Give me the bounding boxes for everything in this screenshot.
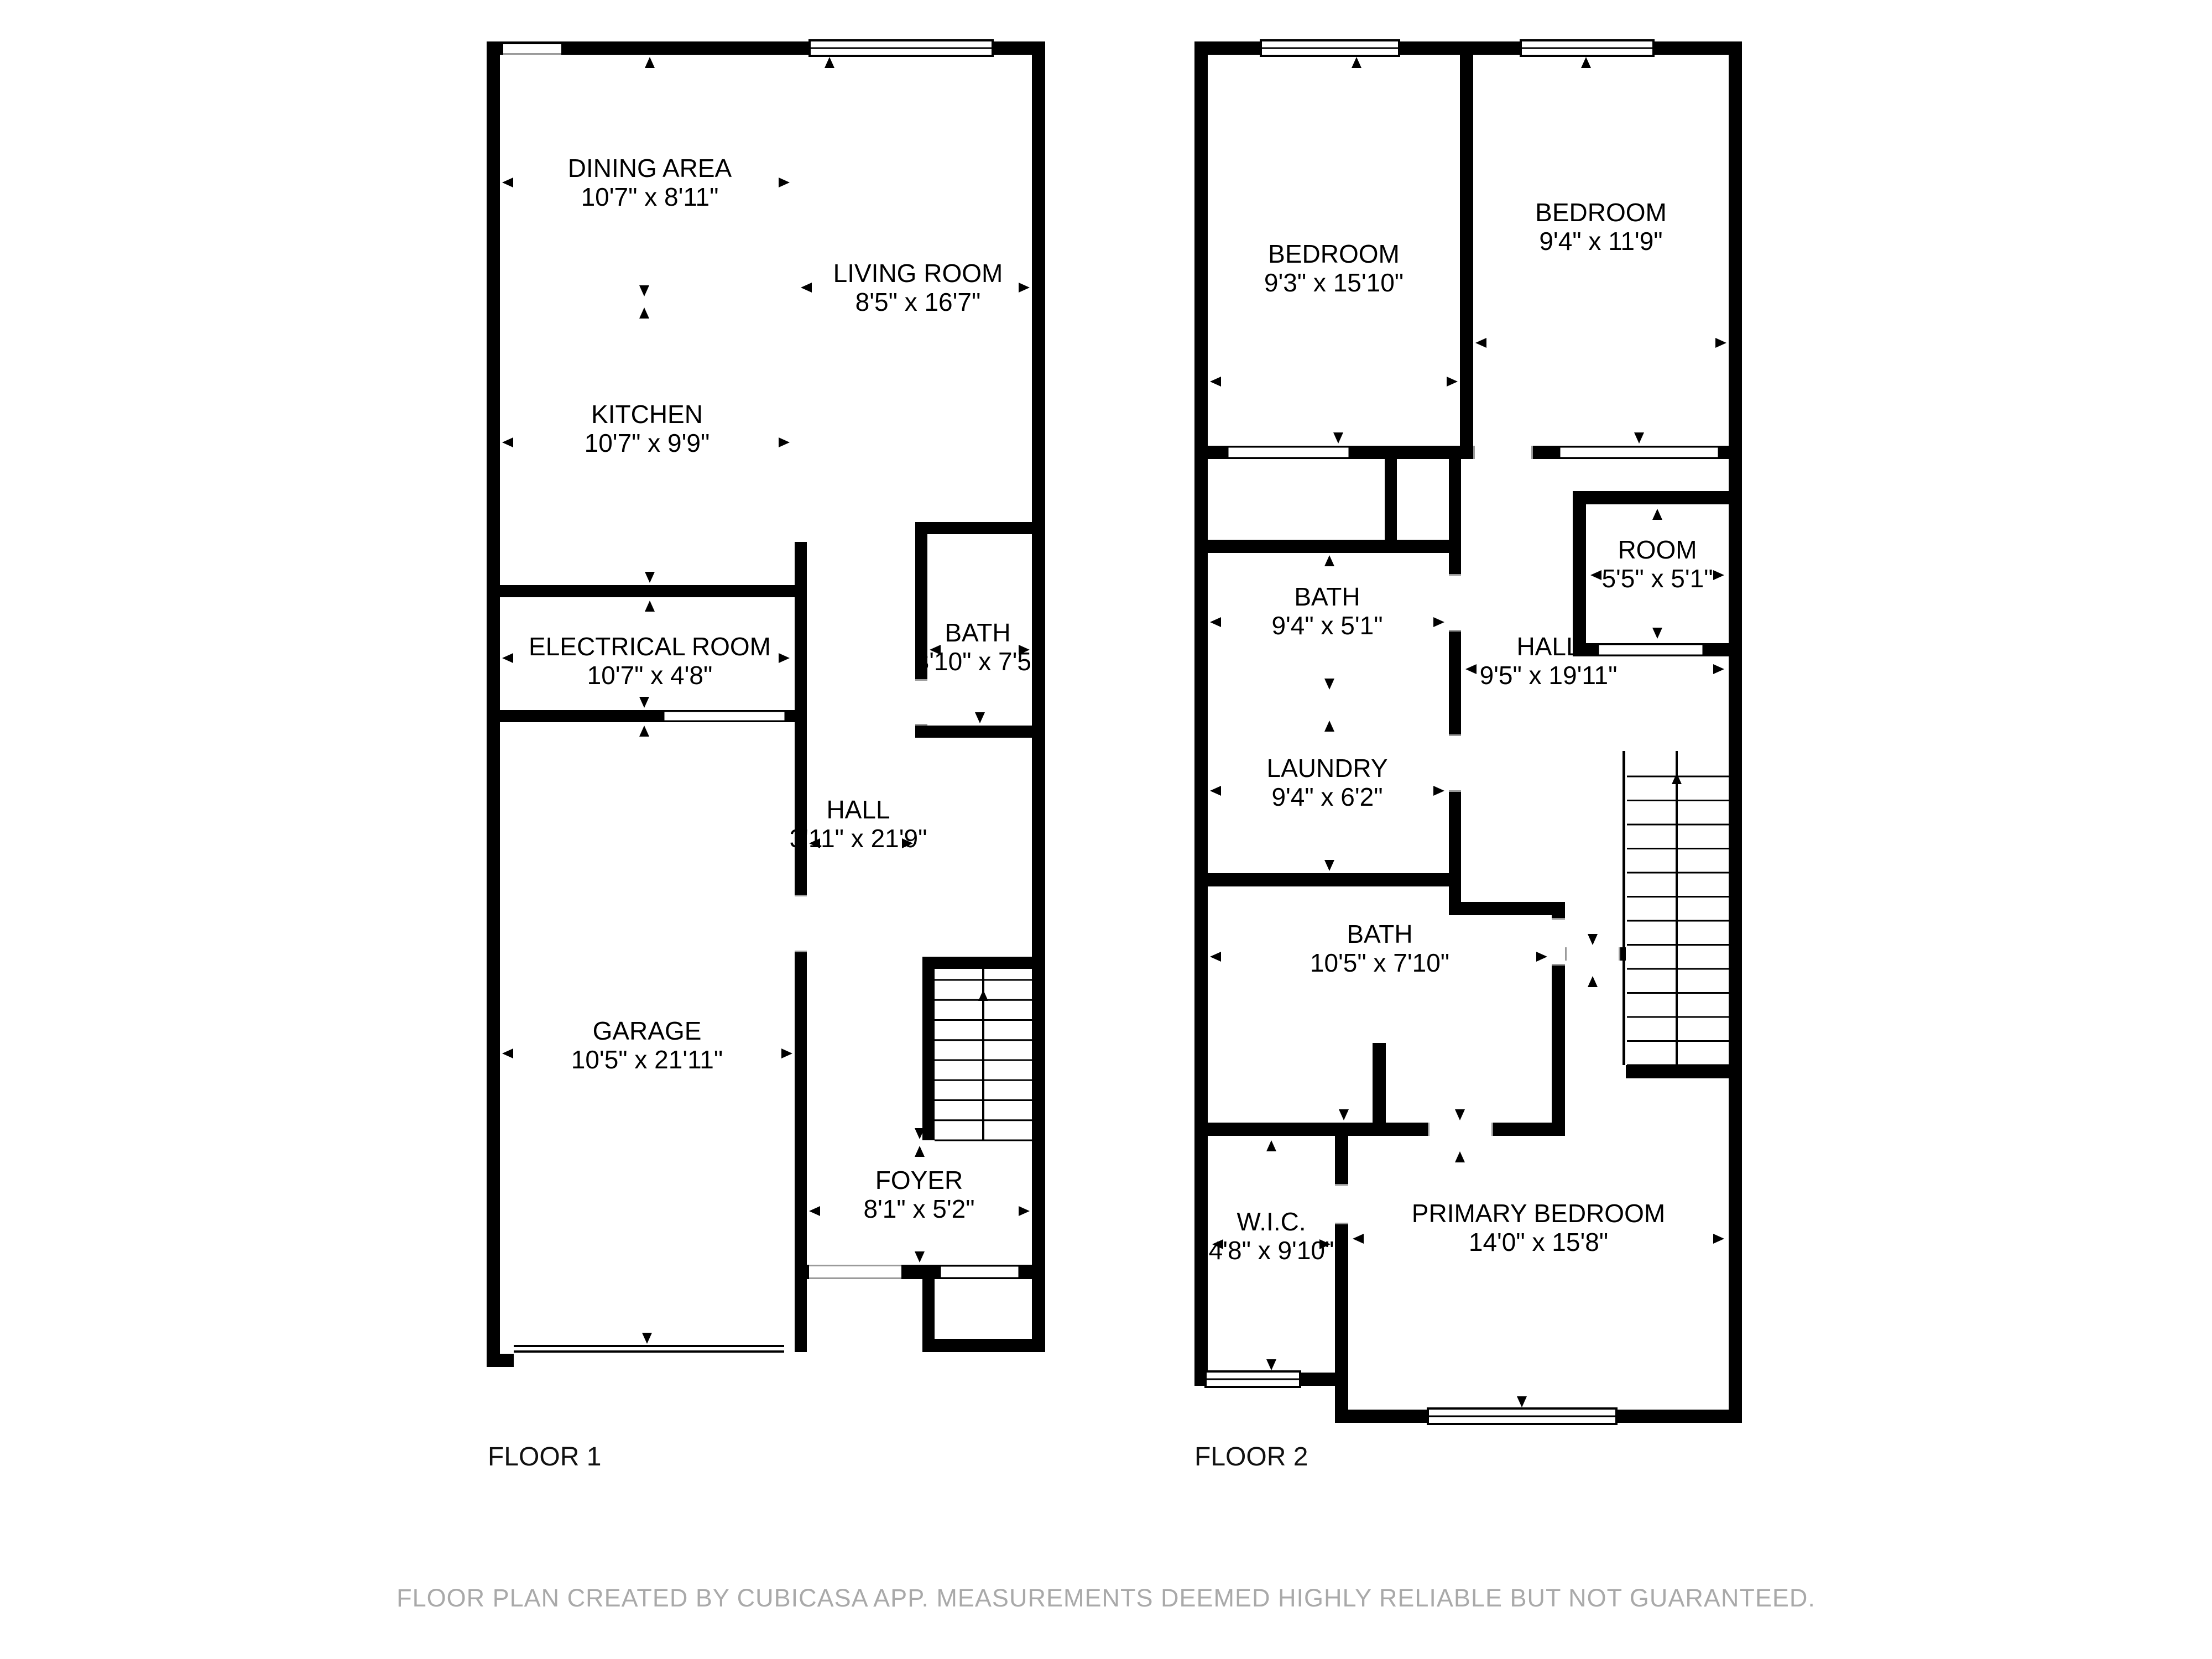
dimension-arrow-icon [1210, 617, 1221, 627]
dimension-arrow-icon [645, 57, 655, 68]
door-threshold [1473, 446, 1475, 459]
room-dims-bath-lower: 10'5" x 7'10" [1310, 948, 1449, 977]
door-opening [1335, 1185, 1348, 1224]
room-dims-laundry: 9'4" x 6'2" [1271, 782, 1383, 811]
dimension-arrow-icon [1333, 432, 1343, 444]
room-dims-living: 8'5" x 16'7" [855, 288, 981, 316]
dimension-arrow-icon [639, 697, 649, 708]
dimension-arrow-icon [645, 572, 655, 583]
wall-segment [1194, 873, 1461, 886]
dimension-arrow-icon [1266, 1140, 1276, 1151]
door-threshold [1552, 918, 1565, 920]
dimension-arrow-icon [1672, 773, 1682, 784]
stair-rail [1676, 751, 1678, 1065]
wall-segment [1194, 540, 1461, 553]
sliding-door-icon [1559, 447, 1719, 458]
dimension-arrow-icon [1652, 628, 1662, 639]
room-label-room: ROOM [1618, 535, 1697, 564]
room-dims-primary: 14'0" x 15'8" [1469, 1228, 1608, 1256]
sliding-door-icon [664, 711, 785, 721]
wall-segment [1032, 41, 1045, 1352]
door-threshold [809, 1265, 901, 1266]
dimension-arrow-icon [1353, 1234, 1364, 1244]
dimension-arrow-icon [1713, 1234, 1724, 1244]
room-label-foyer: FOYER [875, 1166, 963, 1194]
door-threshold [1335, 1223, 1348, 1224]
dimension-arrow-icon [975, 712, 985, 723]
wall-segment [500, 585, 807, 597]
wall-segment [922, 1339, 1045, 1352]
room-label-primary: PRIMARY BEDROOM [1412, 1199, 1665, 1228]
door-threshold [1449, 574, 1461, 576]
dimension-arrow-icon [809, 1206, 820, 1216]
dimension-arrow-icon [1210, 786, 1221, 796]
door-threshold [1449, 790, 1461, 792]
door-opening [795, 896, 807, 951]
dimension-arrow-icon [502, 653, 513, 663]
wall-segment [1385, 459, 1397, 540]
dimension-arrow-icon [1324, 860, 1334, 871]
dimension-arrow-icon [1634, 432, 1644, 444]
dimension-arrow-icon [1433, 617, 1444, 627]
dimension-arrow-icon [1455, 1151, 1465, 1162]
dimension-arrow-icon [779, 178, 790, 187]
door-threshold [1619, 947, 1620, 961]
dimension-arrow-icon [642, 1333, 652, 1344]
room-label-bedroom-right: BEDROOM [1535, 198, 1667, 227]
door-threshold [1449, 630, 1461, 632]
wall-segment [1729, 41, 1742, 1423]
dimension-arrow-icon [1465, 664, 1477, 674]
dimension-arrow-icon [1324, 555, 1334, 566]
room-label-bath-upper: BATH [1294, 582, 1360, 611]
dimension-arrow-icon [1588, 976, 1598, 987]
dimension-arrow-icon [1447, 377, 1458, 387]
wall-segment [1373, 1043, 1386, 1123]
room-label-bedroom-left: BEDROOM [1268, 239, 1400, 268]
floor1-labels: DINING AREA 10'7" x 8'11" LIVING ROOM 8'… [529, 154, 1040, 1223]
room-dims-bedroom-right: 9'4" x 11'9" [1539, 227, 1662, 255]
dimension-arrow-icon [1324, 721, 1334, 732]
wall-segment [915, 522, 1032, 534]
floorplan-canvas: DINING AREA 10'7" x 8'11" LIVING ROOM 8'… [0, 0, 2212, 1659]
dimension-arrow-icon [639, 285, 649, 296]
dimension-arrow-icon [645, 601, 655, 612]
door-threshold [1491, 1123, 1493, 1136]
dimension-arrow-icon [1019, 1206, 1030, 1216]
room-label-dining: DINING AREA [568, 154, 732, 182]
wall-segment [1461, 902, 1565, 915]
wall-segment [1573, 491, 1729, 504]
dimension-arrow-icon [1019, 283, 1030, 293]
door-threshold [1565, 947, 1567, 961]
dimension-arrow-icon [502, 1048, 513, 1058]
room-label-bath: BATH [945, 618, 1010, 647]
dimension-arrow-icon [1588, 934, 1598, 945]
floor1-plan: DINING AREA 10'7" x 8'11" LIVING ROOM 8'… [487, 40, 1045, 1367]
door-opening [1473, 446, 1533, 459]
dimension-arrow-icon [1455, 1109, 1465, 1120]
dimension-arrow-icon [779, 653, 790, 663]
door-opening [1565, 947, 1620, 961]
dimension-arrow-icon [1713, 570, 1724, 580]
room-dims-room: 5'5" x 5'1" [1601, 564, 1713, 593]
wall-segment [1449, 459, 1461, 915]
dimension-arrow-icon [1517, 1396, 1527, 1407]
room-dims-wic: 4'8" x 9'10" [1209, 1236, 1334, 1265]
floor1-openings [503, 41, 1019, 1353]
floor1-windows [810, 40, 993, 56]
dimension-arrow-icon [978, 990, 988, 1001]
dimension-arrow-icon [1352, 57, 1361, 68]
wall-segment [915, 726, 1032, 738]
floor2-title: FLOOR 2 [1194, 1442, 1308, 1472]
dimension-arrow-icon [1590, 570, 1601, 580]
door-threshold [795, 951, 807, 952]
floor2-plan: BEDROOM 9'3" x 15'10" BEDROOM 9'4" x 11'… [1194, 40, 1742, 1424]
room-label-bath-lower: BATH [1347, 920, 1412, 948]
door-threshold [795, 895, 807, 896]
door-opening [1449, 575, 1461, 630]
room-label-garage: GARAGE [593, 1016, 702, 1045]
door-threshold [915, 679, 927, 681]
wall-segment [487, 41, 500, 1367]
dimension-arrow-icon [1536, 952, 1547, 962]
dimension-arrow-icon [781, 1048, 792, 1058]
room-dims-kitchen: 10'7" x 9'9" [585, 429, 710, 457]
door-opening [1449, 735, 1461, 791]
wall-segment [1460, 55, 1473, 446]
door-threshold [809, 1277, 901, 1279]
dimension-arrow-icon [1475, 338, 1486, 348]
dimension-arrow-icon [801, 283, 812, 293]
room-dims-garage: 10'5" x 21'11" [571, 1045, 723, 1074]
dimension-arrow-icon [779, 437, 790, 447]
door-threshold [1552, 964, 1565, 966]
room-dims-hall: 9'5" x 19'11" [1480, 661, 1618, 690]
room-dims-foyer: 8'1" x 5'2" [863, 1194, 974, 1223]
door-threshold [1428, 1123, 1430, 1136]
dimension-arrow-icon [502, 437, 513, 447]
wall-segment [1194, 41, 1208, 1386]
dimension-arrow-icon [639, 726, 649, 737]
garage-door-icon [514, 1345, 784, 1347]
room-dims-hall: 3'11" x 21'9" [790, 824, 927, 853]
door-threshold [915, 724, 927, 726]
dimension-arrow-icon [1713, 664, 1724, 674]
dimension-arrow-icon [1581, 57, 1591, 68]
door-opening [915, 680, 927, 724]
porch-door-icon [940, 1266, 1019, 1278]
door-threshold [1335, 1184, 1348, 1186]
room-label-hall: HALL [826, 795, 890, 824]
dimension-arrow-icon [915, 1251, 925, 1262]
dimension-arrow-icon [1652, 509, 1662, 520]
wall-opening-edge [503, 41, 561, 44]
room-dims-dining: 10'7" x 8'11" [581, 182, 719, 211]
room-dims-bedroom-left: 9'3" x 15'10" [1264, 268, 1404, 297]
floor2-stairs [1623, 751, 1729, 1065]
door-threshold [1449, 734, 1461, 736]
sliding-door-icon [1228, 447, 1349, 458]
stair-rail [1623, 751, 1625, 1065]
room-label-electrical: ELECTRICAL ROOM [529, 632, 771, 661]
dimension-arrow-icon [1210, 377, 1221, 387]
room-label-laundry: LAUNDRY [1267, 754, 1388, 782]
dimension-arrow-icon [1324, 679, 1334, 690]
dimension-arrow-icon [502, 178, 513, 187]
room-label-wic: W.I.C. [1237, 1207, 1306, 1236]
entry-door-opening [809, 1265, 901, 1279]
garage-door-icon [514, 1350, 784, 1353]
dimension-arrow-icon [1210, 952, 1221, 962]
door-opening [1428, 1123, 1493, 1136]
dimension-arrow-icon [1433, 786, 1444, 796]
wall-segment [1626, 1065, 1742, 1078]
dimension-arrow-icon [915, 1146, 925, 1157]
wall-segment [1194, 1123, 1565, 1136]
sliding-door-icon [1598, 644, 1703, 655]
dimension-arrow-icon [1339, 1109, 1349, 1120]
dimension-arrow-icon [825, 57, 834, 68]
dimension-arrow-icon [1266, 1359, 1276, 1370]
dimension-arrow-icon [1715, 338, 1726, 348]
door-opening [1552, 919, 1565, 966]
room-dims-bath-upper: 9'4" x 5'1" [1271, 611, 1383, 640]
dimension-arrow-icon [639, 307, 649, 319]
room-dims-electrical: 10'7" x 4'8" [587, 661, 713, 690]
room-label-kitchen: KITCHEN [591, 400, 703, 429]
door-threshold [503, 53, 561, 55]
door-threshold [1531, 446, 1533, 459]
room-label-living: LIVING ROOM [833, 259, 1003, 288]
floor1-title: FLOOR 1 [488, 1442, 601, 1472]
room-label-hall: HALL [1516, 632, 1580, 661]
wall-segment [922, 957, 935, 1140]
wall-segment [922, 957, 1032, 969]
footer-disclaimer: FLOOR PLAN CREATED BY CUBICASA APP. MEAS… [397, 1584, 1815, 1612]
wall-segment [487, 1354, 514, 1367]
